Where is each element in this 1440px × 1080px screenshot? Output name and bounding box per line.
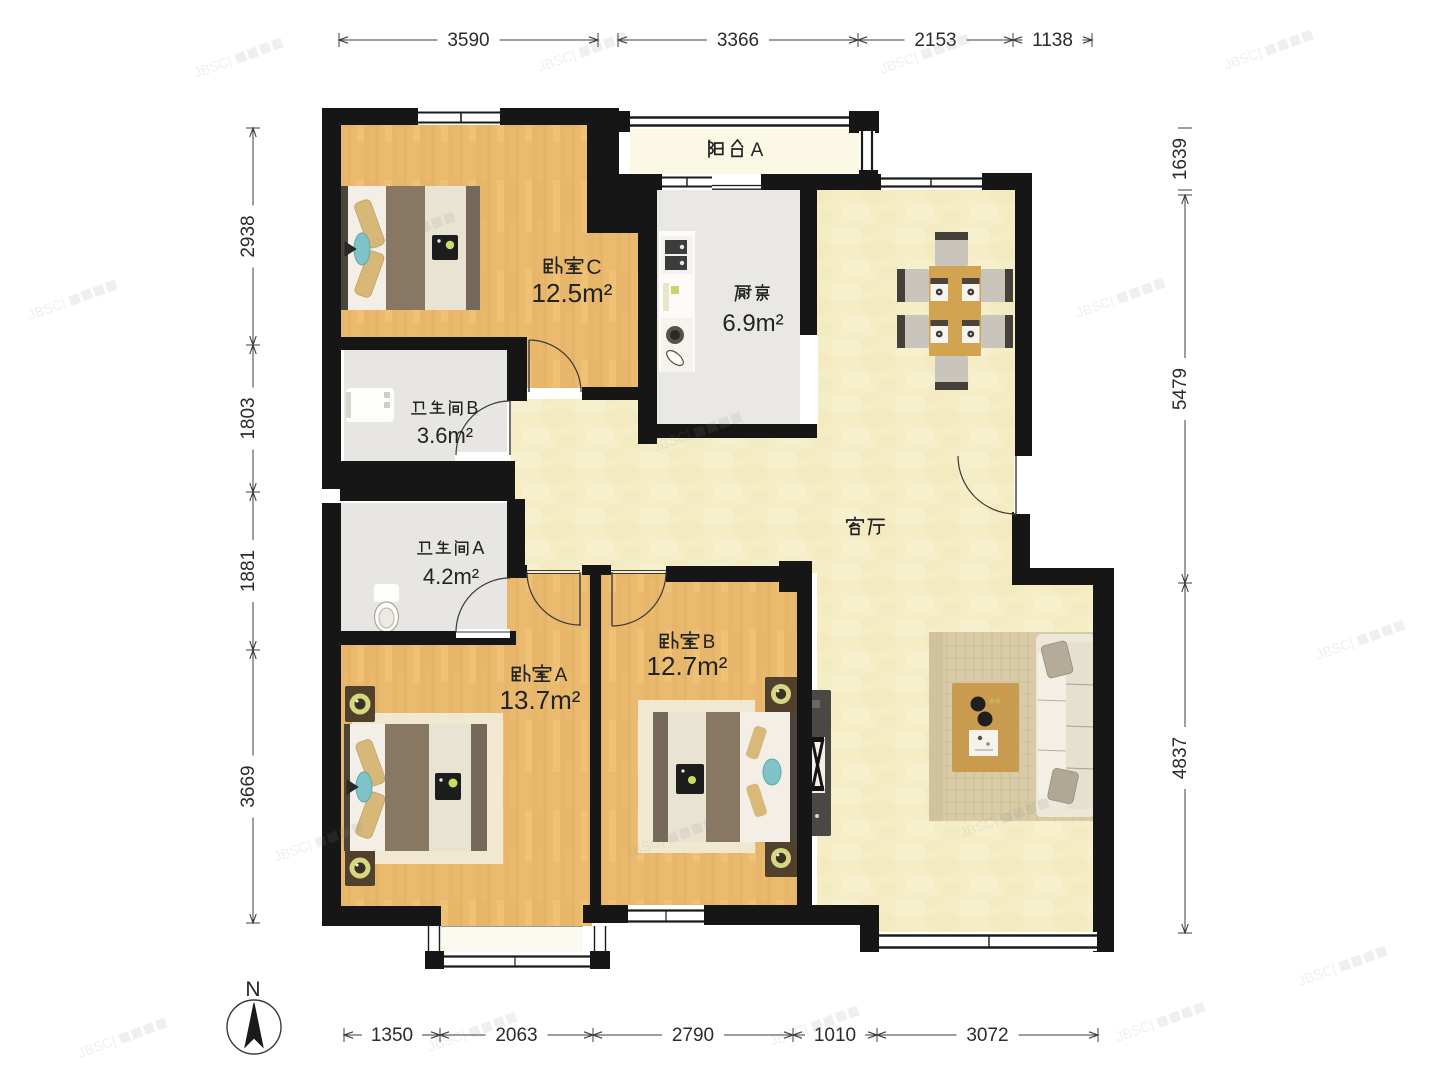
svg-text:3072: 3072: [966, 1025, 1008, 1046]
svg-text:A: A: [555, 665, 568, 686]
svg-text:13.7m²: 13.7m²: [500, 685, 581, 715]
svg-text:1639: 1639: [1170, 138, 1191, 180]
svg-text:1881: 1881: [238, 550, 259, 592]
svg-text:4.2m²: 4.2m²: [423, 564, 479, 589]
svg-text:N: N: [245, 978, 260, 1001]
svg-text:1803: 1803: [238, 397, 259, 439]
svg-text:6.9m²: 6.9m²: [722, 310, 783, 337]
svg-text:3669: 3669: [238, 765, 259, 807]
svg-text:12.7m²: 12.7m²: [647, 651, 728, 681]
svg-text:2790: 2790: [672, 1025, 714, 1046]
svg-text:1350: 1350: [371, 1025, 413, 1046]
svg-text:C: C: [586, 256, 601, 279]
svg-text:A: A: [751, 140, 764, 161]
svg-text:1138: 1138: [1032, 30, 1073, 51]
svg-text:2063: 2063: [495, 1025, 537, 1046]
svg-text:5479: 5479: [1170, 368, 1191, 410]
svg-text:B: B: [466, 398, 478, 418]
svg-text:12.5m²: 12.5m²: [532, 278, 613, 308]
svg-text:4837: 4837: [1170, 737, 1191, 779]
svg-text:3590: 3590: [447, 30, 489, 51]
svg-text:A: A: [472, 538, 484, 558]
svg-text:B: B: [703, 632, 716, 653]
svg-text:3.6m²: 3.6m²: [417, 423, 473, 448]
svg-text:2938: 2938: [238, 215, 259, 257]
svg-text:3366: 3366: [717, 30, 759, 51]
